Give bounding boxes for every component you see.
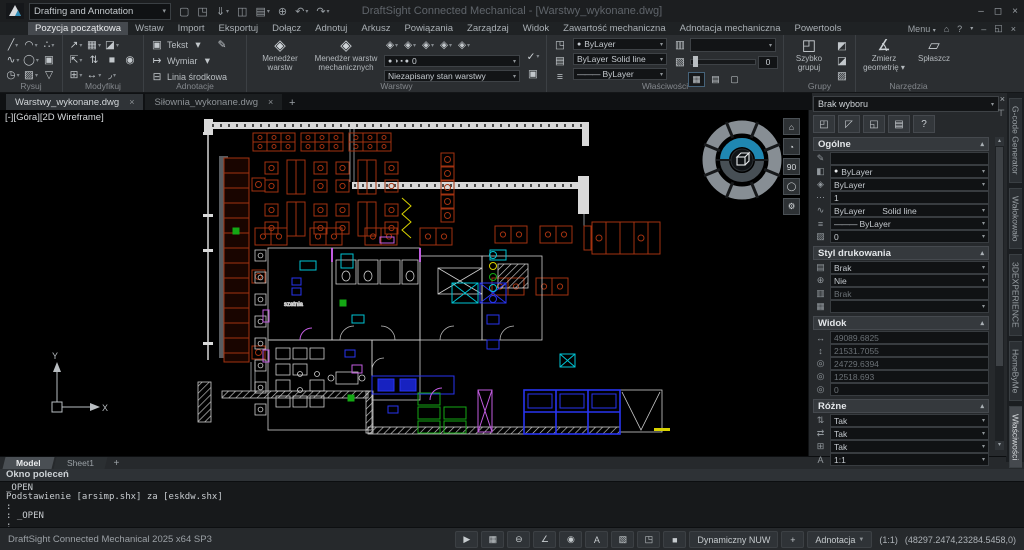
property-row-note: ✎ bbox=[813, 153, 989, 164]
linetype-selector[interactable]: ByLayerSolid line ▾ bbox=[573, 53, 667, 65]
property-row-color: ◧●ByLayer▾ bbox=[813, 166, 989, 177]
chevron-down-icon: ▾ bbox=[991, 101, 994, 108]
linetype-icon: ∿ bbox=[813, 205, 828, 216]
polar-toggle[interactable]: ∠ bbox=[533, 531, 556, 548]
ucs-y-label: Y bbox=[52, 351, 58, 361]
dimension-tool-button[interactable]: Wymiar bbox=[167, 56, 197, 66]
menubar-right: Menu ▾ ⌂ ? ▾ – ◱ × bbox=[908, 22, 1024, 35]
draw-tool-chevron-0: ▾ bbox=[15, 42, 18, 49]
cyan-fixtures bbox=[300, 250, 575, 367]
chevron-down-icon: ▾ bbox=[162, 7, 166, 15]
command-window-title: Okno poleceń bbox=[6, 469, 69, 480]
chevron-down-icon: ▾ bbox=[982, 233, 985, 240]
ribbon-tab-13[interactable]: Powertools bbox=[787, 22, 848, 35]
ribbon-tab-8[interactable]: Powiązania bbox=[397, 22, 460, 35]
ucs-x-label: X bbox=[102, 403, 108, 413]
color-dot-icon: ● bbox=[834, 168, 838, 175]
property-row-ucs-icon-visible: ⇅Tak▾ bbox=[813, 415, 989, 426]
draftsight-logo-icon bbox=[6, 3, 24, 19]
close-button[interactable]: × bbox=[1012, 6, 1018, 17]
print-style-value: Brak bbox=[834, 263, 851, 273]
drawing-canvas[interactable]: [-][Góra][2D Wireframe] ⌂◔90◯⚙ bbox=[0, 110, 806, 456]
group-label-properties: Właściwości bbox=[547, 81, 783, 92]
sheet-tab-sheet1[interactable]: Sheet1 bbox=[53, 457, 107, 469]
grid-toggle[interactable]: ▦ bbox=[481, 531, 504, 548]
layer-tool-chevron-2: ▾ bbox=[431, 42, 434, 49]
measure-geometry-button[interactable]: ∡ Zmierzgeometrię ▾ bbox=[861, 38, 907, 80]
quick-input-toggle[interactable]: ◳ bbox=[637, 531, 660, 548]
room-label: szatnia bbox=[284, 302, 304, 308]
scroll-down-icon[interactable]: ▾ bbox=[995, 441, 1004, 450]
flatten-button[interactable]: ▱ Spłaszcz bbox=[912, 38, 956, 80]
layer-tool-glyph-2: ◈ bbox=[422, 39, 430, 51]
property-sections: Ogólne▴✎◧●ByLayer▾◈ByLayer▾⋯1∿ByLayerSol… bbox=[813, 137, 989, 465]
tool-row-2: ⊞▾↔▾◞▾ bbox=[68, 68, 138, 82]
help-chevron-icon[interactable]: ▾ bbox=[970, 25, 973, 32]
group-tools: ◩◪▨ bbox=[834, 38, 850, 80]
ucs-icon-origin-value: Tak bbox=[834, 429, 847, 439]
command-window-header[interactable]: Okno poleceń bbox=[0, 468, 1024, 482]
group-label-tools: Narzędzia bbox=[856, 81, 961, 92]
section-header[interactable]: Różne▴ bbox=[813, 399, 989, 413]
ribbon-group-tools: ∡ Zmierzgeometrię ▾ ▱ Spłaszcz Narzędzia bbox=[856, 35, 961, 92]
qat-button-chevron-4: ▾ bbox=[267, 8, 270, 15]
chevron-down-icon: ▾ bbox=[513, 58, 516, 65]
palette-tab-3[interactable]: 3DEXPERIENCE bbox=[1009, 254, 1022, 336]
section-header[interactable]: Styl drukowania▴ bbox=[813, 246, 989, 260]
status-bar: DraftSight Connected Mechanical 2025 x64… bbox=[0, 527, 1024, 550]
command-window[interactable]: _OPEN _OPEN Podstawienie [arsimp.shx] za… bbox=[0, 481, 1024, 527]
select-window-button[interactable]: ◱ bbox=[863, 115, 885, 133]
dynamic-ucs-button[interactable]: Dynamiczny NUW bbox=[689, 531, 778, 548]
palette-tab-strip: G-code GeneratorWałokowało3DEXPERIENCEHo… bbox=[1006, 92, 1024, 462]
text-tool-icon[interactable]: ▣ bbox=[149, 38, 165, 52]
layer-tool-3[interactable]: ◈▾ bbox=[438, 38, 454, 52]
restore-button[interactable]: ◻ bbox=[994, 6, 1002, 17]
scroll-up-icon[interactable]: ▴ bbox=[995, 137, 1004, 146]
section-title: Różne bbox=[818, 401, 847, 412]
draw-tool-chevron-1: ▾ bbox=[35, 42, 38, 49]
layer-tool-glyph-4: ◈ bbox=[458, 39, 466, 51]
document-tab-bar: Warstwy_wykonane.dwg×Siłownia_wykonane.d… bbox=[0, 92, 812, 110]
quick-group-button[interactable]: ◰ Szybkogrupuj bbox=[789, 38, 829, 80]
ribbon-tab-1[interactable]: Pozycja początkowa bbox=[28, 22, 128, 35]
document-tab-label: Siłownia_wykonane.dwg bbox=[154, 97, 258, 108]
layer-field[interactable]: ByLayer▾ bbox=[830, 178, 989, 191]
collapse-icon[interactable]: ▴ bbox=[980, 140, 984, 148]
yellow-fixtures bbox=[402, 198, 670, 431]
linetype-scale-field[interactable]: 1 bbox=[830, 191, 989, 204]
chevron-down-icon: ▾ bbox=[982, 181, 985, 188]
navigation-wheel[interactable] bbox=[704, 122, 780, 198]
ribbon-group-layers: ◈ Menedżerwarstw ◈ Menedżer warstwmechan… bbox=[247, 35, 547, 92]
draw-tool-glyph-0: ∿ bbox=[7, 54, 16, 66]
property-row-lineweight: ≡———ByLayer▾ bbox=[813, 218, 989, 229]
entity-track-toggle[interactable]: A bbox=[585, 531, 608, 548]
layer-tool-chevron-4: ▾ bbox=[467, 42, 470, 49]
doc-minimize-button[interactable]: – bbox=[981, 24, 986, 34]
document-tab-label: Warstwy_wykonane.dwg bbox=[15, 97, 119, 108]
draw-tool-glyph-1: ▨ bbox=[24, 69, 34, 81]
lineweight-value: ByLayer bbox=[860, 219, 891, 229]
ribbon-tab-9[interactable]: Zarządzaj bbox=[460, 22, 516, 35]
transparency-value: 0 bbox=[834, 232, 839, 242]
modify-tool-0[interactable]: ⇱▾ bbox=[68, 53, 84, 67]
ucs-icon-origin-field[interactable]: Tak▾ bbox=[830, 427, 989, 440]
property-row-linetype: ∿ByLayerSolid line▾ bbox=[813, 205, 989, 216]
section-header[interactable]: Widok▴ bbox=[813, 316, 989, 330]
ucs-icon-visible-icon: ⇅ bbox=[813, 415, 828, 426]
layer-selector[interactable]: ● ◑ ▪ ● 0 ▾ bbox=[384, 55, 520, 67]
modify-tool-1[interactable]: ⇅ bbox=[86, 53, 102, 67]
modify-tool-0[interactable]: ↗▾ bbox=[68, 38, 84, 52]
quick-select-button[interactable]: ▤ bbox=[888, 115, 910, 133]
current-layer-value: 0 bbox=[412, 56, 417, 66]
copy-layer-state-button[interactable]: ▣ bbox=[525, 67, 541, 80]
note-icon: ✎ bbox=[813, 153, 828, 164]
ribbon-tab-11[interactable]: Zawartość mechaniczna bbox=[556, 22, 672, 35]
property-row-annotation-scale: A1:1▾ bbox=[813, 454, 989, 465]
modify-tool-3[interactable]: ◉ bbox=[122, 53, 138, 67]
qat-button-glyph-7: ↷ bbox=[316, 5, 325, 18]
ucs-per-viewport-icon: ⊞ bbox=[813, 441, 828, 452]
tab-close-icon[interactable]: × bbox=[268, 97, 273, 107]
help-button[interactable]: ? bbox=[957, 24, 962, 34]
ribbon-group-properties: ◳▤≡ ● ByLayer ▾ ByLayerSolid line ▾ ——— … bbox=[547, 35, 784, 92]
layer-tool-4[interactable]: ◈▾ bbox=[456, 38, 472, 52]
quick-access-toolbar: ▢◳⇓▾◫▤▾⊕↶▾↷▾ bbox=[176, 3, 333, 19]
center-x-field[interactable]: 24729.6394 bbox=[830, 357, 989, 370]
modify-tool-glyph-1: ▦ bbox=[87, 39, 97, 51]
modify-tools-grid: ↗▾▦▾◪▾⇱▾⇅■◉⊞▾↔▾◞▾ bbox=[68, 38, 138, 80]
draw-tool-0[interactable]: ╱▾ bbox=[5, 38, 21, 52]
draw-tool-2[interactable]: ▣ bbox=[41, 53, 57, 67]
sheet-tab-model[interactable]: Model bbox=[3, 457, 55, 469]
palette-tab-4[interactable]: HomeByMe bbox=[1009, 341, 1022, 401]
linetype-field[interactable]: ByLayerSolid line▾ bbox=[830, 204, 989, 217]
layer-tool-glyph-3: ◈ bbox=[440, 39, 448, 51]
layer-tool-0[interactable]: ◈▾ bbox=[384, 38, 400, 52]
draw-tool-glyph-0: ╱ bbox=[8, 39, 14, 51]
select-add-button[interactable]: ◸ bbox=[838, 115, 860, 133]
dimension-tool-chevron[interactable]: ▾ bbox=[199, 54, 215, 68]
print-style-table-field[interactable]: Brak bbox=[830, 287, 989, 300]
linetype-scale-icon: ⋯ bbox=[813, 192, 828, 203]
dimension-tool-icon[interactable]: ↦ bbox=[149, 54, 165, 68]
qat-button-4[interactable]: ▤▾ bbox=[252, 3, 272, 19]
print-table-value: Nie bbox=[834, 276, 847, 286]
palette-scrollbar[interactable]: ▴ ▾ bbox=[995, 137, 1004, 450]
selection-filter-toggle[interactable]: ▧ bbox=[611, 531, 634, 548]
property-row-linetype-scale: ⋯1 bbox=[813, 192, 989, 203]
ucs-icon: Y X bbox=[52, 351, 108, 413]
magenta-fixtures bbox=[263, 237, 492, 432]
draw-tool-chevron-0: ▾ bbox=[17, 72, 20, 79]
draw-tool-chevron-1: ▾ bbox=[36, 57, 39, 64]
layer-tools-row: ◈▾◈▾◈▾◈▾◈▾ bbox=[384, 38, 520, 52]
qat-button-7[interactable]: ↷▾ bbox=[313, 3, 332, 19]
print-style-field[interactable]: Brak▾ bbox=[830, 261, 989, 274]
add-sheet-button[interactable]: + bbox=[108, 457, 126, 469]
pointer-snap-toggle[interactable]: ▶ bbox=[455, 531, 478, 548]
layer-tool-2[interactable]: ◈▾ bbox=[420, 38, 436, 52]
mechanical-layer-manager-button[interactable]: ◈ Menedżer warstwmechanicznych bbox=[313, 38, 379, 80]
palette-pin-icon[interactable]: ⊤ bbox=[997, 108, 1005, 119]
rotate-90-button[interactable]: 90 bbox=[783, 158, 800, 175]
group-icon: ◰ bbox=[802, 38, 816, 54]
modify-tool-chevron-1: ▾ bbox=[98, 72, 101, 79]
group-label-layers: Warstwy bbox=[247, 81, 546, 92]
draw-tool-1[interactable]: ▨▾ bbox=[23, 68, 39, 82]
new-document-tab-button[interactable]: + bbox=[284, 96, 300, 110]
home-view-button[interactable]: ⌂ bbox=[783, 118, 800, 135]
doc-restore-button[interactable]: ◱ bbox=[994, 23, 1003, 34]
section-title: Ogólne bbox=[818, 139, 851, 150]
lineweight-field[interactable]: ———ByLayer▾ bbox=[830, 217, 989, 230]
center-y-value: 12518.693 bbox=[834, 372, 874, 382]
ribbon-tab-5[interactable]: Dołącz bbox=[265, 22, 308, 35]
transparency-icon[interactable]: ▧ bbox=[672, 55, 688, 69]
select-entities-button[interactable]: ◰ bbox=[813, 115, 835, 133]
text-tool-chevron[interactable]: ▾ bbox=[190, 38, 206, 52]
chevron-down-icon: ▾ bbox=[982, 456, 985, 463]
ribbon-tab-4[interactable]: Eksportuj bbox=[212, 22, 266, 35]
view-height-field[interactable]: 21531.7055 bbox=[830, 344, 989, 357]
print-table-attach-field[interactable]: ▾ bbox=[830, 300, 989, 313]
document-tab[interactable]: Siłownia_wykonane.dwg× bbox=[145, 94, 282, 110]
gym-equipment bbox=[224, 133, 660, 362]
chevron-down-icon: ▾ bbox=[982, 277, 985, 284]
property-icon-1[interactable]: ▤ bbox=[552, 55, 568, 67]
lineweight-prefix: ——— bbox=[834, 219, 857, 229]
chevron-down-icon: ▾ bbox=[982, 168, 985, 175]
layer-manager-button[interactable]: ◈ Menedżerwarstw bbox=[252, 38, 308, 80]
draw-tool-glyph-1: ◠ bbox=[24, 39, 33, 51]
ribbon-tab-10[interactable]: Widok bbox=[516, 22, 556, 35]
text-tool-button[interactable]: Tekst bbox=[167, 40, 188, 50]
print-style-icon: ▤ bbox=[813, 262, 828, 273]
qat-button-glyph-3: ◫ bbox=[237, 5, 247, 18]
window-controls: – ◻ × bbox=[978, 6, 1018, 17]
palette-tab-2[interactable]: Wałokowało bbox=[1009, 188, 1022, 250]
ribbon-tab-7[interactable]: Arkusz bbox=[354, 22, 397, 35]
draw-tool-glyph-2: ▽ bbox=[45, 69, 53, 81]
ucs-icon-origin-icon: ⇄ bbox=[813, 428, 828, 439]
modify-tool-glyph-2: ◞ bbox=[108, 69, 112, 81]
qat-button-2[interactable]: ⇓▾ bbox=[213, 3, 232, 19]
ribbon: ╱▾◠▾∴▾∿▾◯▾▣◷▾▨▾▽ Rysuj ↗▾▦▾◪▾⇱▾⇅■◉⊞▾↔▾◞▾… bbox=[0, 35, 1024, 93]
doc-close-button[interactable]: × bbox=[1011, 24, 1016, 34]
annotation-scale-selector[interactable]: Adnotacja▼ bbox=[807, 531, 872, 548]
print-style-icon[interactable]: ▥ bbox=[672, 38, 688, 52]
properties-left-icons: ◳▤≡ bbox=[552, 38, 568, 80]
ucs-per-viewport-value: Tak bbox=[834, 442, 847, 452]
group-label-draw: Rysuj bbox=[0, 81, 62, 92]
entity-snap-toggle[interactable]: ◉ bbox=[559, 531, 582, 548]
menu-button[interactable]: Menu ▾ bbox=[908, 24, 936, 34]
view-height-icon: ↕ bbox=[813, 346, 828, 356]
view-width-field[interactable]: 49089.6825 bbox=[830, 331, 989, 344]
print-style-selector[interactable]: ▾ bbox=[690, 38, 776, 52]
center-z-value: 0 bbox=[834, 385, 839, 395]
tool-row-0: ↗▾▦▾◪▾ bbox=[68, 38, 138, 52]
selection-filter-combo[interactable]: Brak wyboru ▾ bbox=[813, 96, 999, 112]
navigation-toolbar: ⌂◔90◯⚙ bbox=[783, 118, 800, 215]
draw-tool-glyph-2: ∴ bbox=[44, 39, 51, 51]
center-z-field[interactable]: 0 bbox=[830, 383, 989, 396]
flatten-icon: ▱ bbox=[928, 38, 940, 54]
building-interior: szatnia bbox=[255, 248, 662, 432]
ribbon-tab-3[interactable]: Import bbox=[171, 22, 212, 35]
minimize-button[interactable]: – bbox=[978, 6, 984, 17]
property-row-print-table-attach: ▦▾ bbox=[813, 301, 989, 312]
ribbon-tab-bar: Pozycja początkowaWstawImportEksportujDo… bbox=[0, 22, 1024, 35]
chevron-down-icon: ▾ bbox=[982, 207, 985, 214]
qat-button-glyph-4: ▤ bbox=[255, 5, 265, 18]
modify-tool-chevron-2: ▾ bbox=[116, 42, 119, 49]
add-scale-button[interactable]: + bbox=[781, 531, 804, 548]
property-row-center-y: ◎12518.693 bbox=[813, 371, 989, 382]
draw-tool-2[interactable]: ▽ bbox=[41, 68, 57, 82]
draw-tool-0[interactable]: ∿▾ bbox=[5, 53, 21, 67]
modify-tool-chevron-1: ▾ bbox=[98, 42, 101, 49]
qat-button-6[interactable]: ↶▾ bbox=[292, 3, 311, 19]
layer-tool-1[interactable]: ◈▾ bbox=[402, 38, 418, 52]
section-title: Styl drukowania bbox=[818, 248, 891, 259]
ucs-icon-visible-field[interactable]: Tak▾ bbox=[830, 414, 989, 427]
color-field[interactable]: ●ByLayer▾ bbox=[830, 165, 989, 178]
app-version-label: DraftSight Connected Mechanical 2025 x64… bbox=[0, 534, 212, 545]
lineweight-icon: ≡ bbox=[813, 219, 828, 229]
ribbon-tab-12[interactable]: Adnotacja mechaniczna bbox=[673, 22, 788, 35]
layer-state-value: Niezapisany stan warstwy bbox=[388, 71, 486, 81]
scale-indicator: (1:1) bbox=[879, 535, 898, 545]
palette-close-icon[interactable]: × bbox=[1000, 94, 1005, 104]
qat-button-chevron-7: ▾ bbox=[327, 8, 330, 15]
help-button[interactable]: ? bbox=[913, 115, 935, 133]
layer-check-button[interactable]: ✓▾ bbox=[525, 50, 541, 63]
mech-layers-icon: ◈ bbox=[340, 38, 352, 54]
annotation-scale-value: 1:1 bbox=[834, 455, 846, 465]
center-y-icon: ◎ bbox=[813, 371, 828, 382]
modify-tool-1[interactable]: ↔▾ bbox=[86, 68, 102, 82]
center-y-field[interactable]: 12518.693 bbox=[830, 370, 989, 383]
property-row-view-width: ↔49089.6825 bbox=[813, 332, 989, 343]
wheel-settings-icon[interactable]: ⚙ bbox=[783, 198, 800, 215]
transparency-field[interactable]: 0▾ bbox=[830, 230, 989, 243]
palette-tab-properties[interactable]: Właściwości bbox=[1009, 406, 1022, 468]
collapse-icon[interactable]: ▴ bbox=[980, 319, 984, 327]
property-icon-0[interactable]: ◳ bbox=[552, 39, 568, 51]
view-width-icon: ↔ bbox=[813, 333, 828, 343]
home-icon[interactable]: ⌂ bbox=[944, 24, 949, 34]
collapse-icon[interactable]: ▴ bbox=[980, 402, 984, 410]
group-label-groups: Grupy bbox=[784, 81, 855, 92]
print-table-field[interactable]: Nie▾ bbox=[830, 274, 989, 287]
qat-button-5[interactable]: ⊕ bbox=[275, 3, 290, 19]
scroll-thumb[interactable] bbox=[996, 147, 1003, 366]
qat-button-3[interactable]: ◫ bbox=[234, 3, 250, 19]
group-label-modify: Modyfikuj bbox=[63, 81, 143, 92]
qat-button-1[interactable]: ◳ bbox=[194, 3, 210, 19]
ribbon-tabs: Pozycja początkowaWstawImportEksportujDo… bbox=[28, 22, 848, 35]
pen-icon[interactable]: ✎ bbox=[214, 38, 230, 52]
transparency-value: 0 bbox=[758, 56, 778, 69]
section-header[interactable]: Ogólne▴ bbox=[813, 137, 989, 151]
modify-tool-glyph-3: ◉ bbox=[125, 54, 134, 66]
draw-tool-chevron-0: ▾ bbox=[16, 57, 19, 64]
document-tab[interactable]: Warstwy_wykonane.dwg× bbox=[6, 94, 143, 110]
ribbon-group-draw: ╱▾◠▾∴▾∿▾◯▾▣◷▾▨▾▽ Rysuj bbox=[0, 35, 63, 92]
tool-row-1: ⇱▾⇅■◉ bbox=[68, 53, 138, 67]
palette-tab-1[interactable]: G-code Generator bbox=[1009, 98, 1022, 183]
ribbon-tab-6[interactable]: Adnotuj bbox=[308, 22, 354, 35]
draw-tool-glyph-2: ▣ bbox=[44, 54, 54, 66]
lineweight-selector[interactable]: ——— ByLayer ▾ bbox=[573, 68, 667, 80]
full-wheel-button[interactable]: ◯ bbox=[783, 178, 800, 195]
layer-value: ByLayer bbox=[834, 180, 865, 190]
modify-tool-chevron-0: ▾ bbox=[79, 72, 82, 79]
layer-tool-chevron-0: ▾ bbox=[395, 42, 398, 49]
property-row-print-style-table: ▥Brak bbox=[813, 288, 989, 299]
annotation-scale-field[interactable]: 1:1▾ bbox=[830, 453, 989, 466]
ortho-toggle[interactable]: ⊖ bbox=[507, 531, 530, 548]
ucs-icon-visible-value: Tak bbox=[834, 416, 847, 426]
qat-button-glyph-2: ⇓ bbox=[216, 5, 225, 18]
viewport-label[interactable]: [-][Góra][2D Wireframe] bbox=[5, 112, 104, 123]
transparency-slider[interactable] bbox=[690, 59, 756, 65]
group-tool-1[interactable]: ◪ bbox=[834, 55, 850, 67]
modify-tool-chevron-2: ▾ bbox=[113, 72, 116, 79]
ribbon-tab-2[interactable]: Wstaw bbox=[128, 22, 171, 35]
layer-state-icons: ● ◑ ▪ ● bbox=[388, 58, 409, 65]
modify-tool-1[interactable]: ▦▾ bbox=[86, 38, 102, 52]
tab-close-icon[interactable]: × bbox=[129, 97, 134, 107]
qat-button-glyph-5: ⊕ bbox=[278, 5, 287, 18]
draw-tool-1[interactable]: ◯▾ bbox=[23, 53, 39, 67]
qat-button-0[interactable]: ▢ bbox=[176, 3, 192, 19]
status-right: ▶▦⊖∠◉A▧◳■ Dynamiczny NUW + Adnotacja▼ (1… bbox=[455, 531, 1024, 548]
color-value: ByLayer bbox=[841, 167, 872, 177]
group-label-annotations: Adnotacje bbox=[144, 81, 246, 92]
status-toggles: ▶▦⊖∠◉A▧◳■ bbox=[455, 531, 686, 548]
qat-button-glyph-0: ▢ bbox=[179, 5, 189, 18]
center-x-icon: ◎ bbox=[813, 358, 828, 369]
group-tool-0[interactable]: ◩ bbox=[834, 40, 850, 52]
background-swatch[interactable]: ■ bbox=[663, 531, 686, 548]
property-row-ucs-per-viewport: ⊞Tak▾ bbox=[813, 441, 989, 452]
orbit-button[interactable]: ◔ bbox=[783, 138, 800, 155]
modify-tool-2[interactable]: ◪▾ bbox=[104, 38, 120, 52]
modify-tool-0[interactable]: ⊞▾ bbox=[68, 68, 84, 82]
linetype-scale-value: 1 bbox=[834, 193, 839, 203]
draw-tool-0[interactable]: ◷▾ bbox=[5, 68, 21, 82]
property-row-transparency: ▨0▾ bbox=[813, 231, 989, 242]
modify-tool-2[interactable]: ◞▾ bbox=[104, 68, 120, 82]
collapse-icon[interactable]: ▴ bbox=[980, 249, 984, 257]
workspace-selector[interactable]: Drafting and Annotation ▾ bbox=[29, 3, 171, 20]
note-field[interactable] bbox=[830, 152, 989, 165]
layer-icon: ◈ bbox=[813, 179, 828, 190]
layer-tool-glyph-0: ◈ bbox=[386, 39, 394, 51]
ucs-per-viewport-field[interactable]: Tak▾ bbox=[830, 440, 989, 453]
modify-tool-2[interactable]: ■ bbox=[104, 53, 120, 67]
ribbon-group-groups: ◰ Szybkogrupuj ◩◪▨ Grupy bbox=[784, 35, 856, 92]
color-selector[interactable]: ● ByLayer ▾ bbox=[573, 38, 667, 50]
draw-tool-2[interactable]: ∴▾ bbox=[41, 38, 57, 52]
draw-tool-1[interactable]: ◠▾ bbox=[23, 38, 39, 52]
print-style-table-icon: ▥ bbox=[813, 288, 828, 299]
